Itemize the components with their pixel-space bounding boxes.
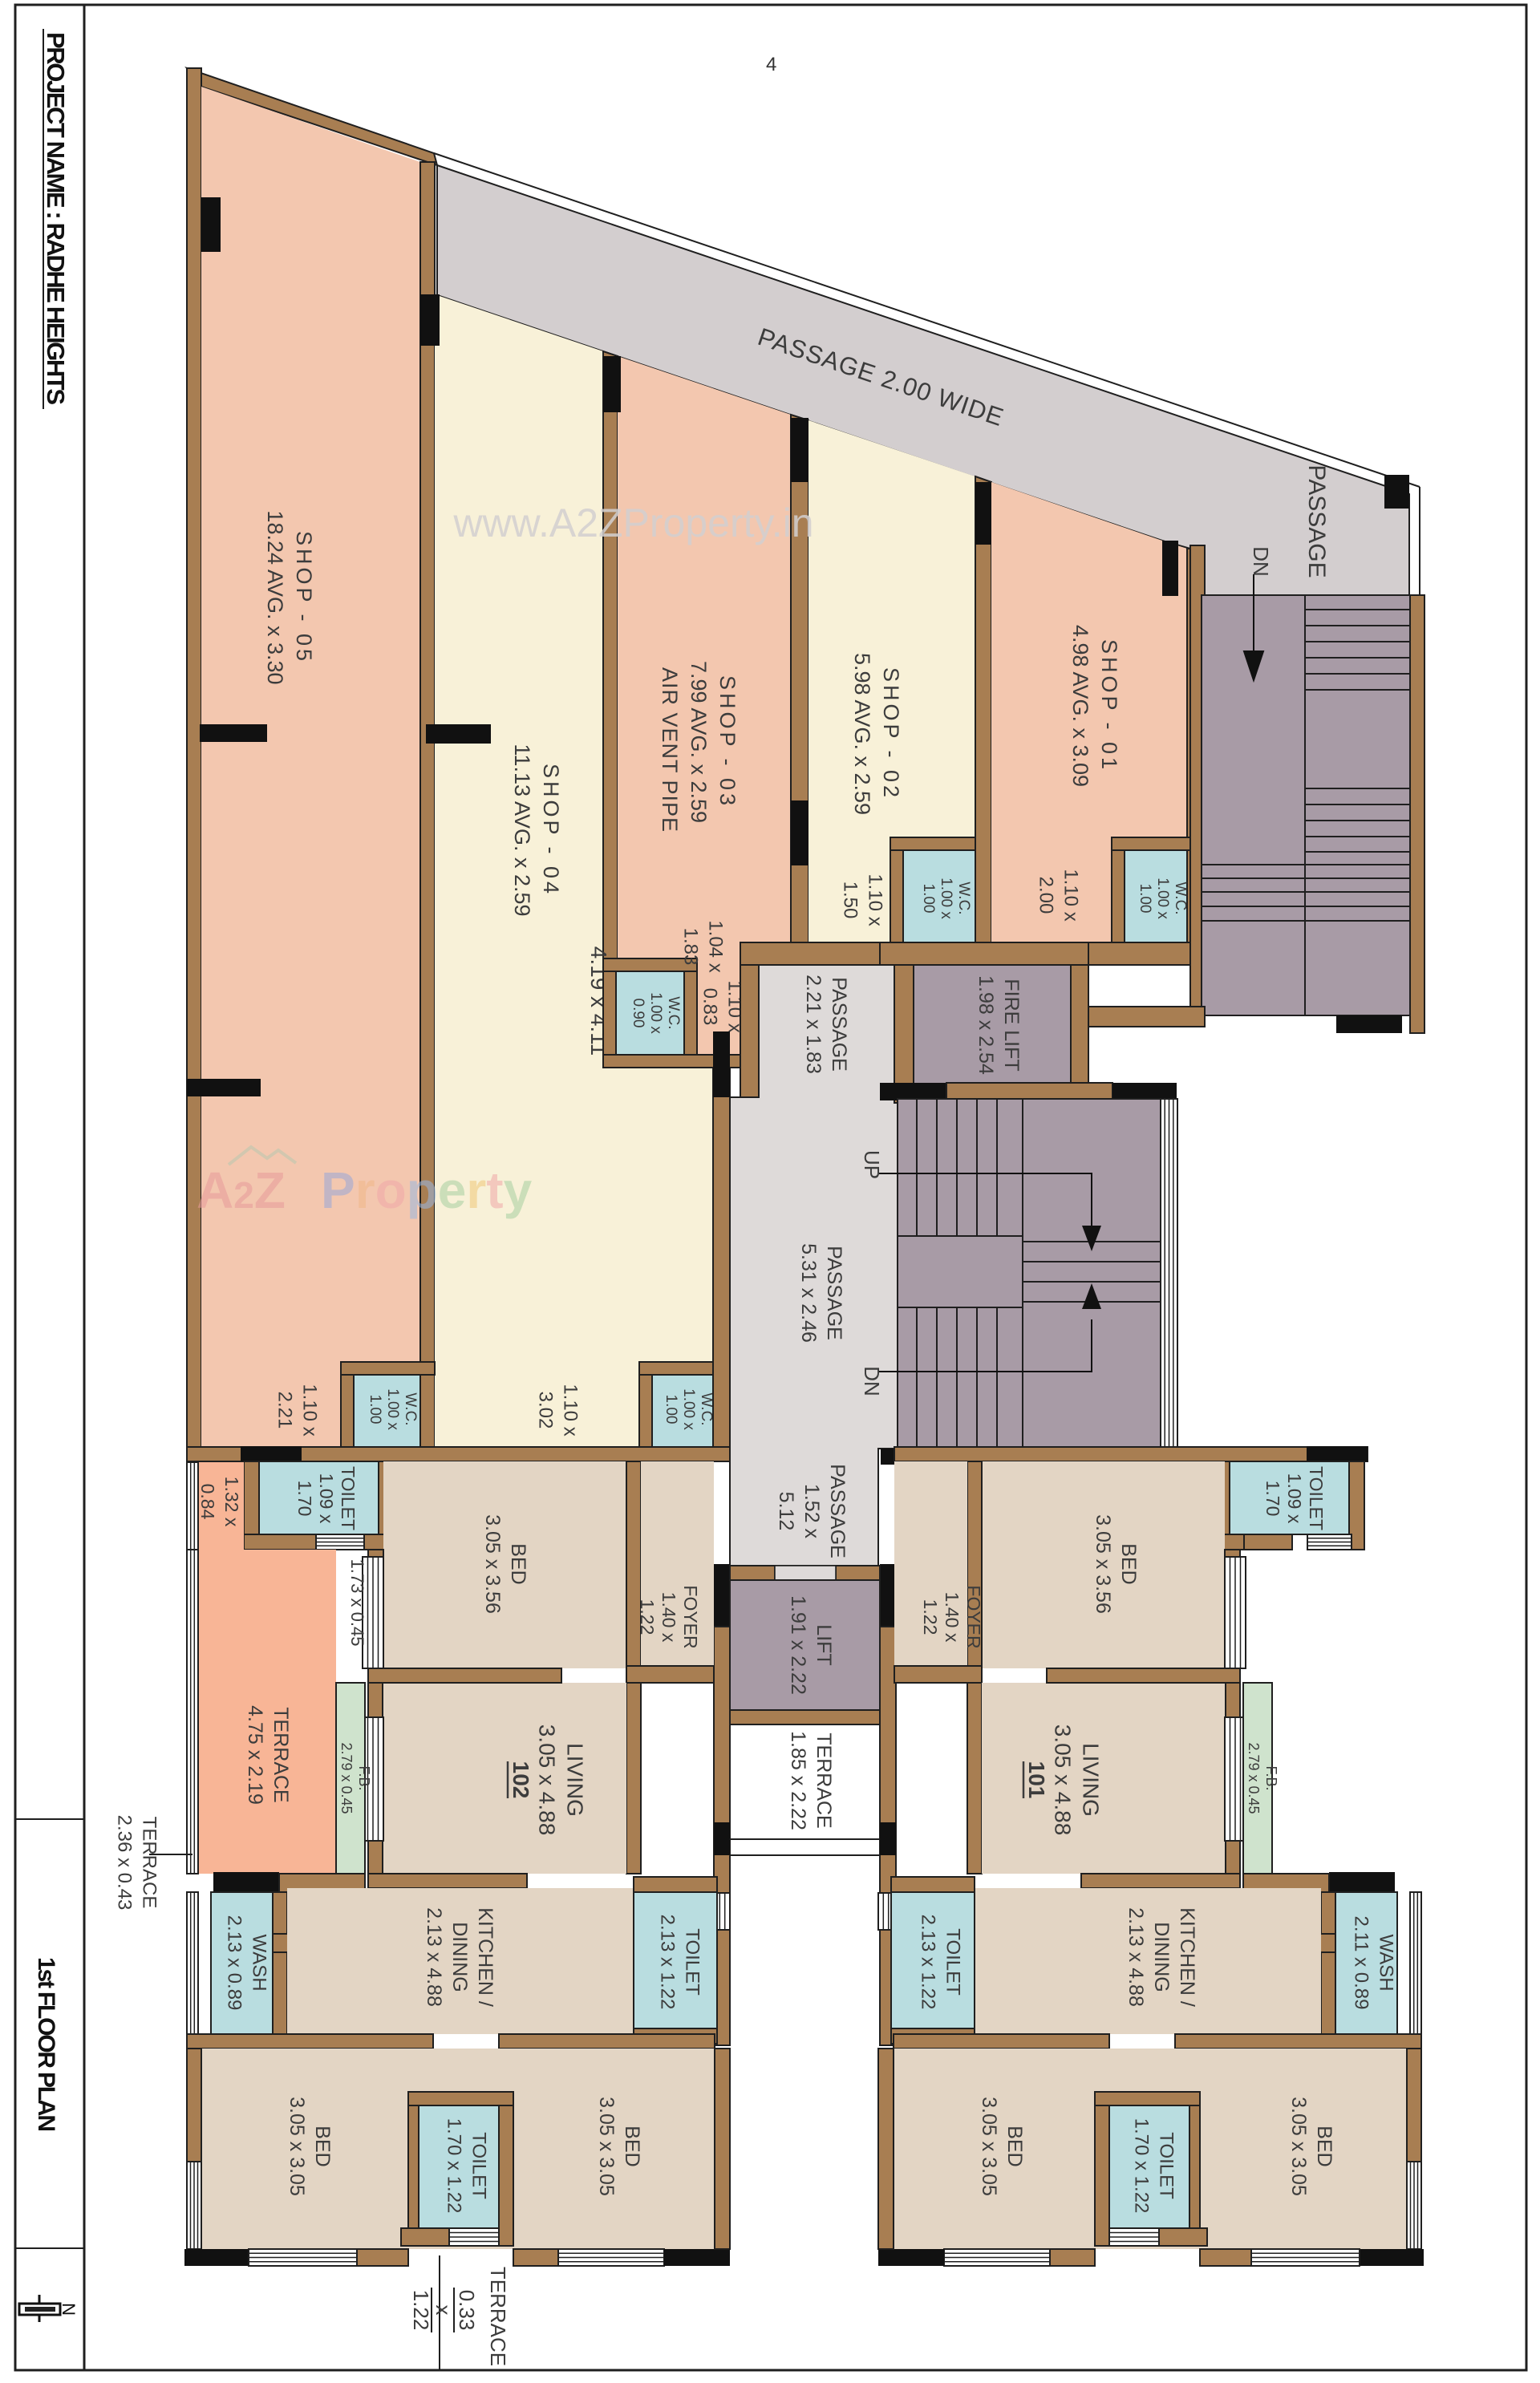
svg-text:1.10 x: 1.10 x xyxy=(1060,869,1082,921)
svg-text:0.84: 0.84 xyxy=(197,1484,218,1520)
svg-text:W.C.: W.C. xyxy=(1172,881,1189,914)
svg-text:2.21: 2.21 xyxy=(274,1392,296,1429)
svg-text:BED: BED xyxy=(1313,2126,1335,2166)
svg-text:PASSAGE: PASSAGE xyxy=(1303,464,1330,578)
svg-text:SHOP - 03: SHOP - 03 xyxy=(715,675,740,809)
svg-text:1.32 x: 1.32 x xyxy=(221,1477,242,1527)
svg-text:4.75 x 2.19: 4.75 x 2.19 xyxy=(244,1705,266,1805)
svg-text:1.22: 1.22 xyxy=(409,2290,433,2331)
svg-text:2.11 x 0.89: 2.11 x 0.89 xyxy=(1351,1916,1372,2010)
svg-text:PASSAGE: PASSAGE xyxy=(828,977,850,1072)
svg-text:3.05 x 3.56: 3.05 x 3.56 xyxy=(1092,1514,1114,1614)
svg-text:1.22: 1.22 xyxy=(637,1599,658,1635)
svg-text:3.02: 3.02 xyxy=(535,1392,557,1429)
svg-text:1.52 x: 1.52 x xyxy=(800,1484,823,1539)
svg-text:UP: UP xyxy=(860,1150,884,1179)
svg-text:5.98 AVG. x 2.59: 5.98 AVG. x 2.59 xyxy=(850,653,874,815)
svg-text:KITCHEN /: KITCHEN / xyxy=(1176,1907,1198,2007)
svg-text:3.05 x 4.88: 3.05 x 4.88 xyxy=(1051,1724,1076,1836)
svg-text:11.13 AVG. x 2.59: 11.13 AVG. x 2.59 xyxy=(510,744,534,916)
svg-text:TERRACE: TERRACE xyxy=(813,1733,835,1828)
svg-text:TOILET: TOILET xyxy=(338,1466,359,1530)
svg-text:1.73 x 0.45: 1.73 x 0.45 xyxy=(347,1559,367,1647)
svg-text:1.00 x: 1.00 x xyxy=(680,1388,697,1430)
svg-text:3.05 x 3.56: 3.05 x 3.56 xyxy=(481,1514,504,1614)
svg-text:2.36 x 0.43: 2.36 x 0.43 xyxy=(114,1815,136,1911)
svg-text:BED: BED xyxy=(507,1543,529,1584)
svg-text:7.99 AVG. x 2.59: 7.99 AVG. x 2.59 xyxy=(687,661,711,823)
svg-text:1.10 x: 1.10 x xyxy=(865,873,886,926)
svg-text:W.C.: W.C. xyxy=(665,996,682,1029)
svg-text:1.00 x: 1.00 x xyxy=(1154,877,1171,919)
svg-text:1.00 x: 1.00 x xyxy=(647,992,664,1034)
svg-text:SHOP - 05: SHOP - 05 xyxy=(292,531,316,664)
svg-text:2.00: 2.00 xyxy=(1035,877,1057,914)
svg-text:AIR VENT PIPE: AIR VENT PIPE xyxy=(658,667,682,833)
svg-text:PROJECT NAME : RADHE HEIGHTS: PROJECT NAME : RADHE HEIGHTS xyxy=(42,32,70,405)
svg-text:TOILET: TOILET xyxy=(1306,1466,1327,1530)
svg-text:DINING: DINING xyxy=(1150,1922,1173,1992)
svg-text:5.31 x 2.46: 5.31 x 2.46 xyxy=(797,1243,820,1343)
svg-text:1.09 x: 1.09 x xyxy=(316,1473,337,1524)
svg-text:4: 4 xyxy=(766,54,776,75)
svg-text:KITCHEN /: KITCHEN / xyxy=(474,1907,496,2007)
svg-text:4.98 AVG. x 3.09: 4.98 AVG. x 3.09 xyxy=(1068,625,1092,787)
svg-text:2.13 x 0.89: 2.13 x 0.89 xyxy=(224,1915,245,2011)
svg-text:1.00: 1.00 xyxy=(367,1395,383,1425)
svg-text:DN: DN xyxy=(1249,546,1273,577)
svg-text:3.05 x 3.05: 3.05 x 3.05 xyxy=(595,2097,618,2196)
svg-text:W.C.: W.C. xyxy=(402,1392,419,1425)
svg-text:1.70: 1.70 xyxy=(1262,1481,1283,1517)
svg-text:3.05 x 3.05: 3.05 x 3.05 xyxy=(1287,2097,1310,2196)
svg-text:FIRE LIFT: FIRE LIFT xyxy=(1000,979,1023,1071)
svg-text:x: x xyxy=(432,2305,456,2316)
svg-text:1.98 x 2.54: 1.98 x 2.54 xyxy=(975,975,997,1075)
svg-text:DINING: DINING xyxy=(448,1922,471,1992)
svg-text:1.40 x: 1.40 x xyxy=(942,1592,962,1643)
svg-text:BED: BED xyxy=(1117,1543,1140,1584)
svg-text:102: 102 xyxy=(509,1761,533,1799)
svg-text:0.83: 0.83 xyxy=(699,988,721,1026)
svg-text:F.B.: F.B. xyxy=(356,1765,372,1790)
svg-text:1.83: 1.83 xyxy=(680,928,702,966)
svg-text:1.85 x 2.22: 1.85 x 2.22 xyxy=(787,1731,809,1830)
svg-text:TOILET: TOILET xyxy=(942,1928,964,1996)
svg-text:WASH: WASH xyxy=(1376,1934,1397,1991)
svg-text:1.50: 1.50 xyxy=(840,881,861,919)
svg-text:W.C.: W.C. xyxy=(698,1392,715,1425)
svg-text:1.00 x: 1.00 x xyxy=(938,877,954,919)
svg-text:www.A2ZProperty.in: www.A2ZProperty.in xyxy=(452,501,813,545)
svg-text:1.09 x: 1.09 x xyxy=(1284,1473,1305,1524)
svg-text:2.21 x 1.83: 2.21 x 1.83 xyxy=(802,975,825,1074)
svg-text:1.70 x 1.22: 1.70 x 1.22 xyxy=(1131,2118,1153,2214)
svg-text:2.13 x 4.88: 2.13 x 4.88 xyxy=(423,1907,445,2007)
svg-text:1.70: 1.70 xyxy=(294,1481,315,1517)
svg-text:BED: BED xyxy=(1003,2126,1026,2166)
svg-text:N: N xyxy=(59,2303,79,2316)
svg-text:BED: BED xyxy=(311,2126,334,2166)
svg-text:101: 101 xyxy=(1024,1761,1049,1799)
svg-text:2.13 x 1.22: 2.13 x 1.22 xyxy=(657,1915,679,2010)
svg-text:1.04 x: 1.04 x xyxy=(705,920,727,972)
svg-text:W.C.: W.C. xyxy=(955,881,972,914)
svg-text:1.22: 1.22 xyxy=(920,1599,941,1635)
svg-text:LIFT: LIFT xyxy=(813,1624,835,1665)
svg-text:WASH: WASH xyxy=(249,1934,270,1991)
svg-text:1.00 x: 1.00 x xyxy=(384,1388,401,1430)
svg-text:PASSAGE: PASSAGE xyxy=(823,1246,845,1340)
svg-text:1.10 x: 1.10 x xyxy=(560,1384,582,1436)
svg-text:Property: Property xyxy=(321,1161,533,1219)
svg-text:BED: BED xyxy=(621,2126,643,2166)
svg-text:5.12: 5.12 xyxy=(775,1492,797,1531)
svg-text:1st FLOOR PLAN: 1st FLOOR PLAN xyxy=(33,1957,59,2132)
svg-text:SHOP - 01: SHOP - 01 xyxy=(1097,639,1121,772)
svg-text:LIVING: LIVING xyxy=(563,1743,588,1817)
svg-text:TOILET: TOILET xyxy=(1156,2132,1177,2199)
svg-text:TERRACE: TERRACE xyxy=(139,1817,160,1909)
svg-text:TOILET: TOILET xyxy=(468,2132,490,2199)
svg-text:TERRACE: TERRACE xyxy=(486,2267,510,2366)
svg-text:18.24 AVG. x 3.30: 18.24 AVG. x 3.30 xyxy=(263,510,287,684)
svg-text:TERRACE: TERRACE xyxy=(269,1707,292,1802)
svg-text:1.70 x 1.22: 1.70 x 1.22 xyxy=(444,2118,465,2214)
svg-text:DN: DN xyxy=(860,1366,884,1396)
svg-text:SHOP - 04: SHOP - 04 xyxy=(539,764,563,897)
svg-text:LIVING: LIVING xyxy=(1079,1743,1104,1817)
svg-text:1.40 x: 1.40 x xyxy=(659,1592,679,1643)
svg-text:2.13 x 1.22: 2.13 x 1.22 xyxy=(918,1915,939,2010)
svg-text:1.00: 1.00 xyxy=(1137,884,1153,914)
svg-text:3.05 x 3.05: 3.05 x 3.05 xyxy=(286,2097,308,2196)
svg-text:0.33: 0.33 xyxy=(455,2290,479,2331)
svg-text:TOILET: TOILET xyxy=(682,1928,703,1996)
svg-text:F.B.: F.B. xyxy=(1263,1765,1279,1790)
svg-text:FOYER: FOYER xyxy=(963,1585,984,1648)
svg-text:2.79 x 0.45: 2.79 x 0.45 xyxy=(338,1742,355,1814)
svg-text:3.05 x 3.05: 3.05 x 3.05 xyxy=(978,2097,1000,2196)
svg-text:1.00: 1.00 xyxy=(663,1395,679,1425)
svg-text:2.79 x 0.45: 2.79 x 0.45 xyxy=(1246,1742,1262,1814)
svg-text:3.05 x 4.88: 3.05 x 4.88 xyxy=(535,1724,560,1836)
svg-text:PASSAGE: PASSAGE xyxy=(826,1464,849,1558)
svg-text:2.13 x 4.88: 2.13 x 4.88 xyxy=(1125,1907,1147,2007)
svg-text:1.10 x: 1.10 x xyxy=(299,1384,321,1436)
svg-text:1.91 x 2.22: 1.91 x 2.22 xyxy=(787,1595,809,1695)
svg-text:FOYER: FOYER xyxy=(680,1585,701,1648)
svg-text:1.00: 1.00 xyxy=(920,884,937,914)
svg-text:SHOP - 02: SHOP - 02 xyxy=(879,667,903,800)
svg-text:0.90: 0.90 xyxy=(630,999,646,1028)
